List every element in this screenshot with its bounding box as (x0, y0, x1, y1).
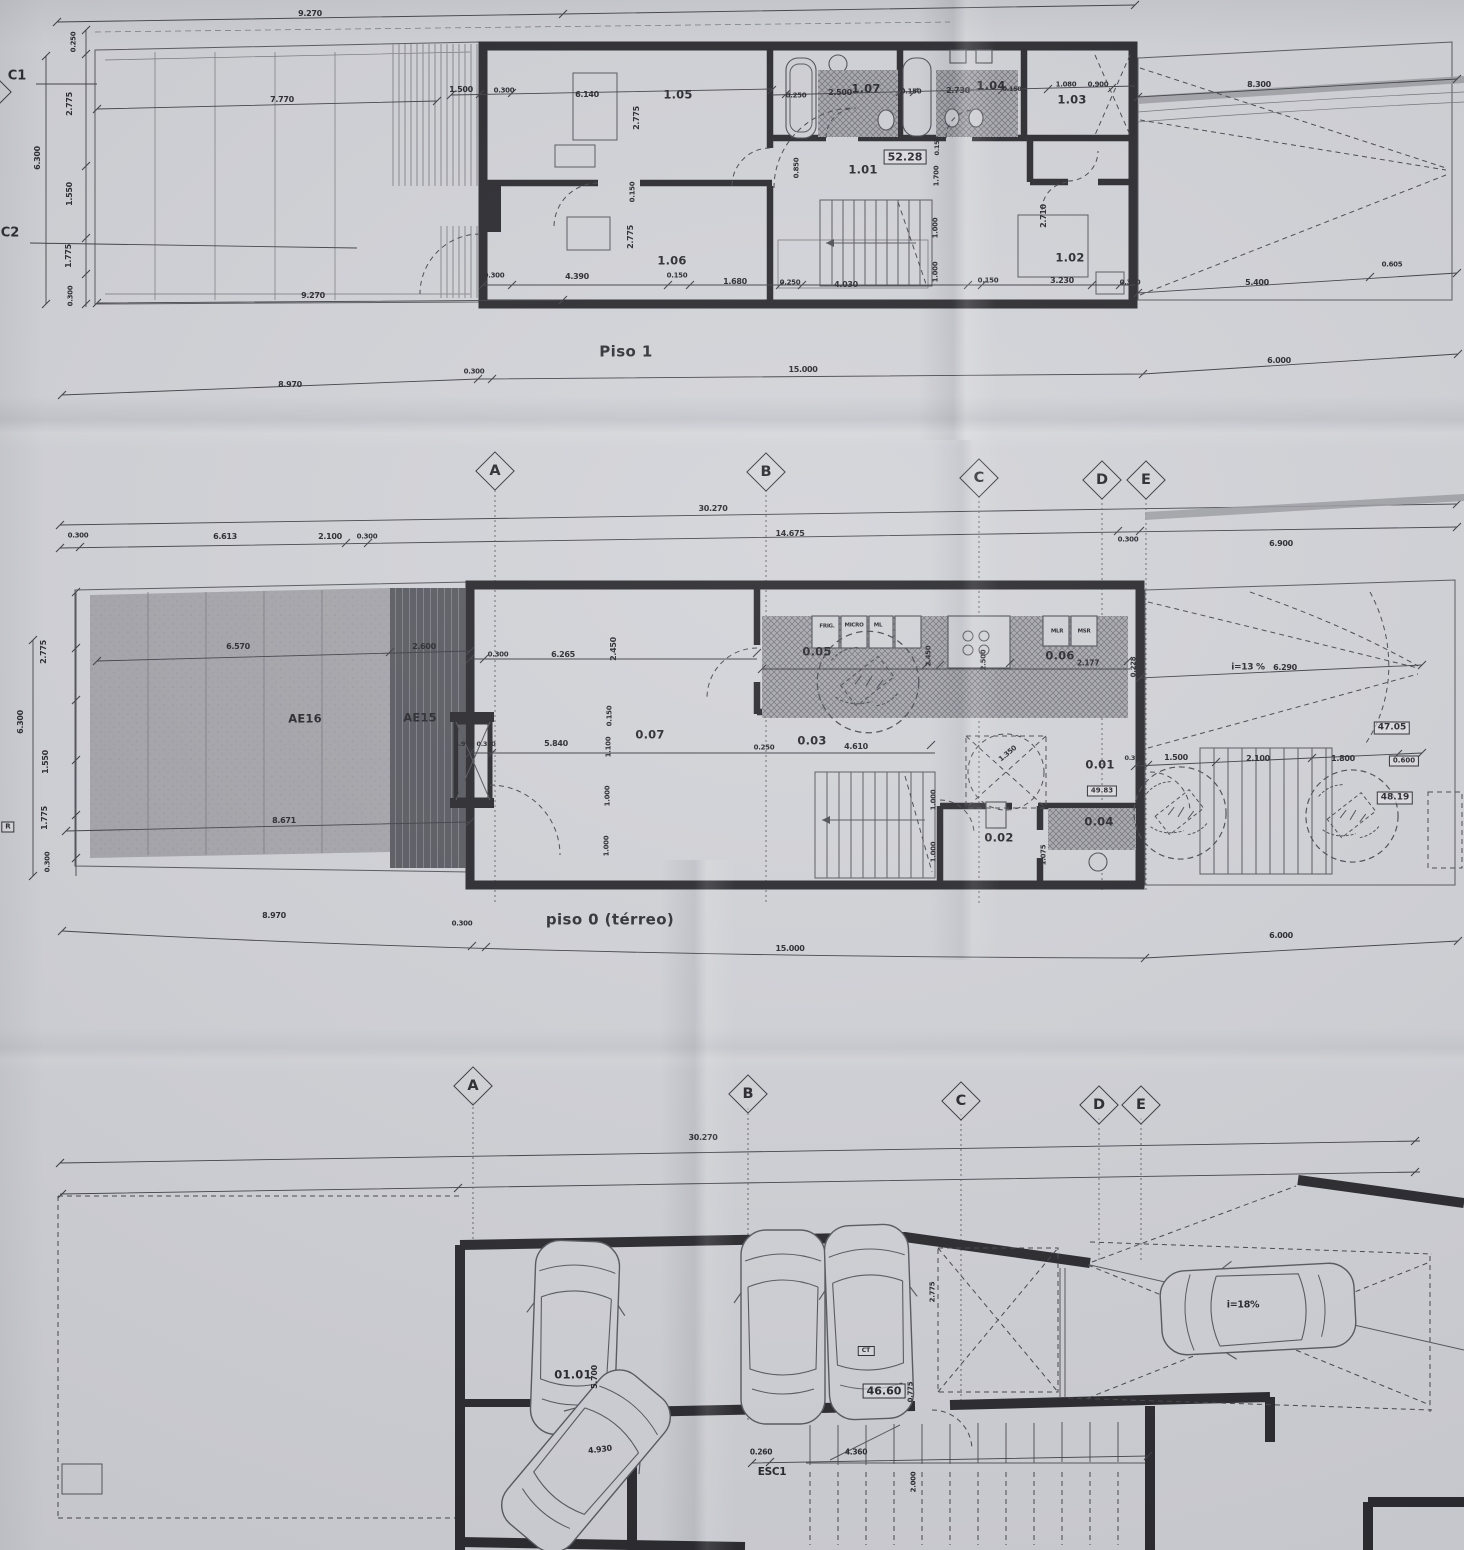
stairs-piso0 (815, 772, 935, 878)
stairs-piso1 (820, 200, 932, 286)
stairs-exterior (1200, 748, 1332, 874)
garage-plan (56, 1102, 1464, 1550)
piso1-plan (30, 1, 1464, 399)
scanned-floor-plan-sheet: .w{stroke:#28282d;fill:none;stroke-linec… (0, 0, 1464, 1550)
stairs-esc1 (806, 1410, 1145, 1545)
piso0-plan (29, 494, 1464, 962)
plan-linework: .w{stroke:#28282d;fill:none;stroke-linec… (0, 0, 1464, 1550)
